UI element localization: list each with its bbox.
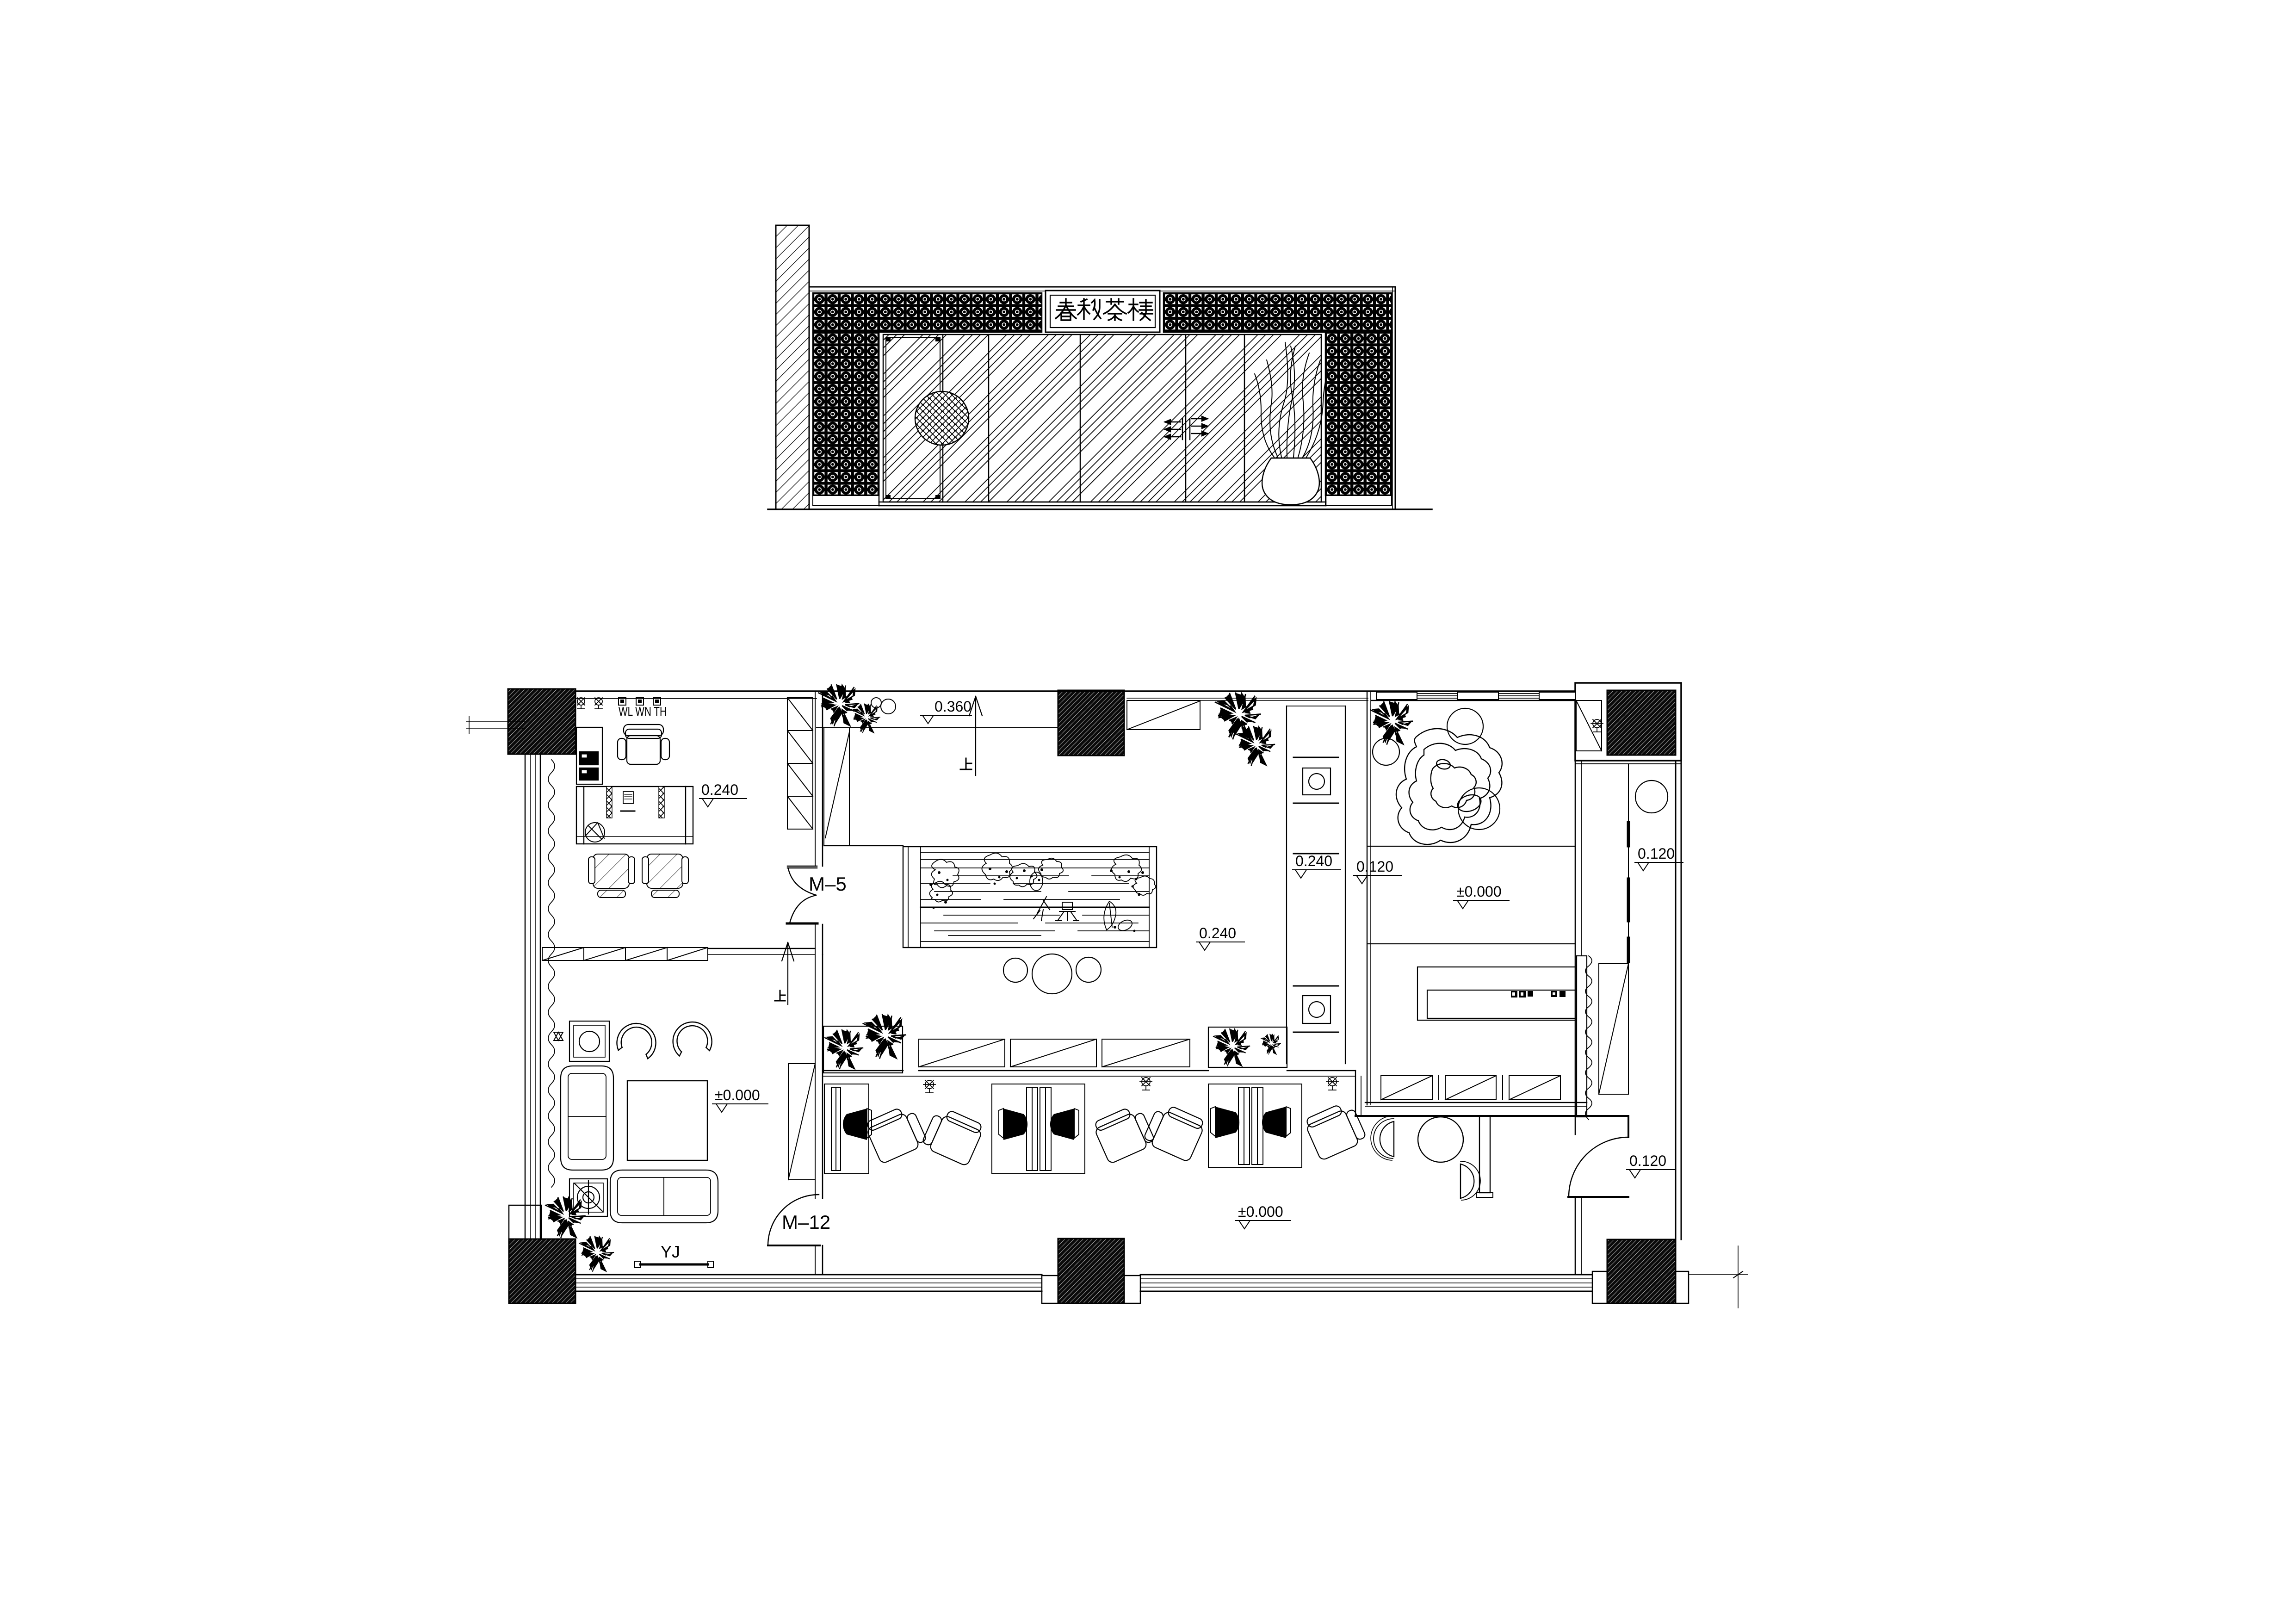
- svg-text:±0.000: ±0.000: [715, 1087, 760, 1103]
- svg-text:YJ: YJ: [661, 1242, 680, 1261]
- svg-text:M–12: M–12: [782, 1211, 830, 1233]
- svg-text:0.120: 0.120: [1638, 845, 1675, 862]
- svg-text:±0.000: ±0.000: [1238, 1203, 1283, 1220]
- svg-text:0.240: 0.240: [1295, 853, 1332, 869]
- svg-text:0.360: 0.360: [934, 698, 972, 715]
- svg-text:M–5: M–5: [809, 873, 847, 895]
- svg-text:0.120: 0.120: [1629, 1152, 1666, 1169]
- svg-text:0.120: 0.120: [1356, 858, 1393, 875]
- svg-text:±0.000: ±0.000: [1456, 883, 1502, 900]
- svg-text:0.240: 0.240: [1199, 925, 1236, 942]
- svg-text:0.240: 0.240: [701, 781, 738, 798]
- svg-text:WL WN TH: WL WN TH: [619, 704, 667, 719]
